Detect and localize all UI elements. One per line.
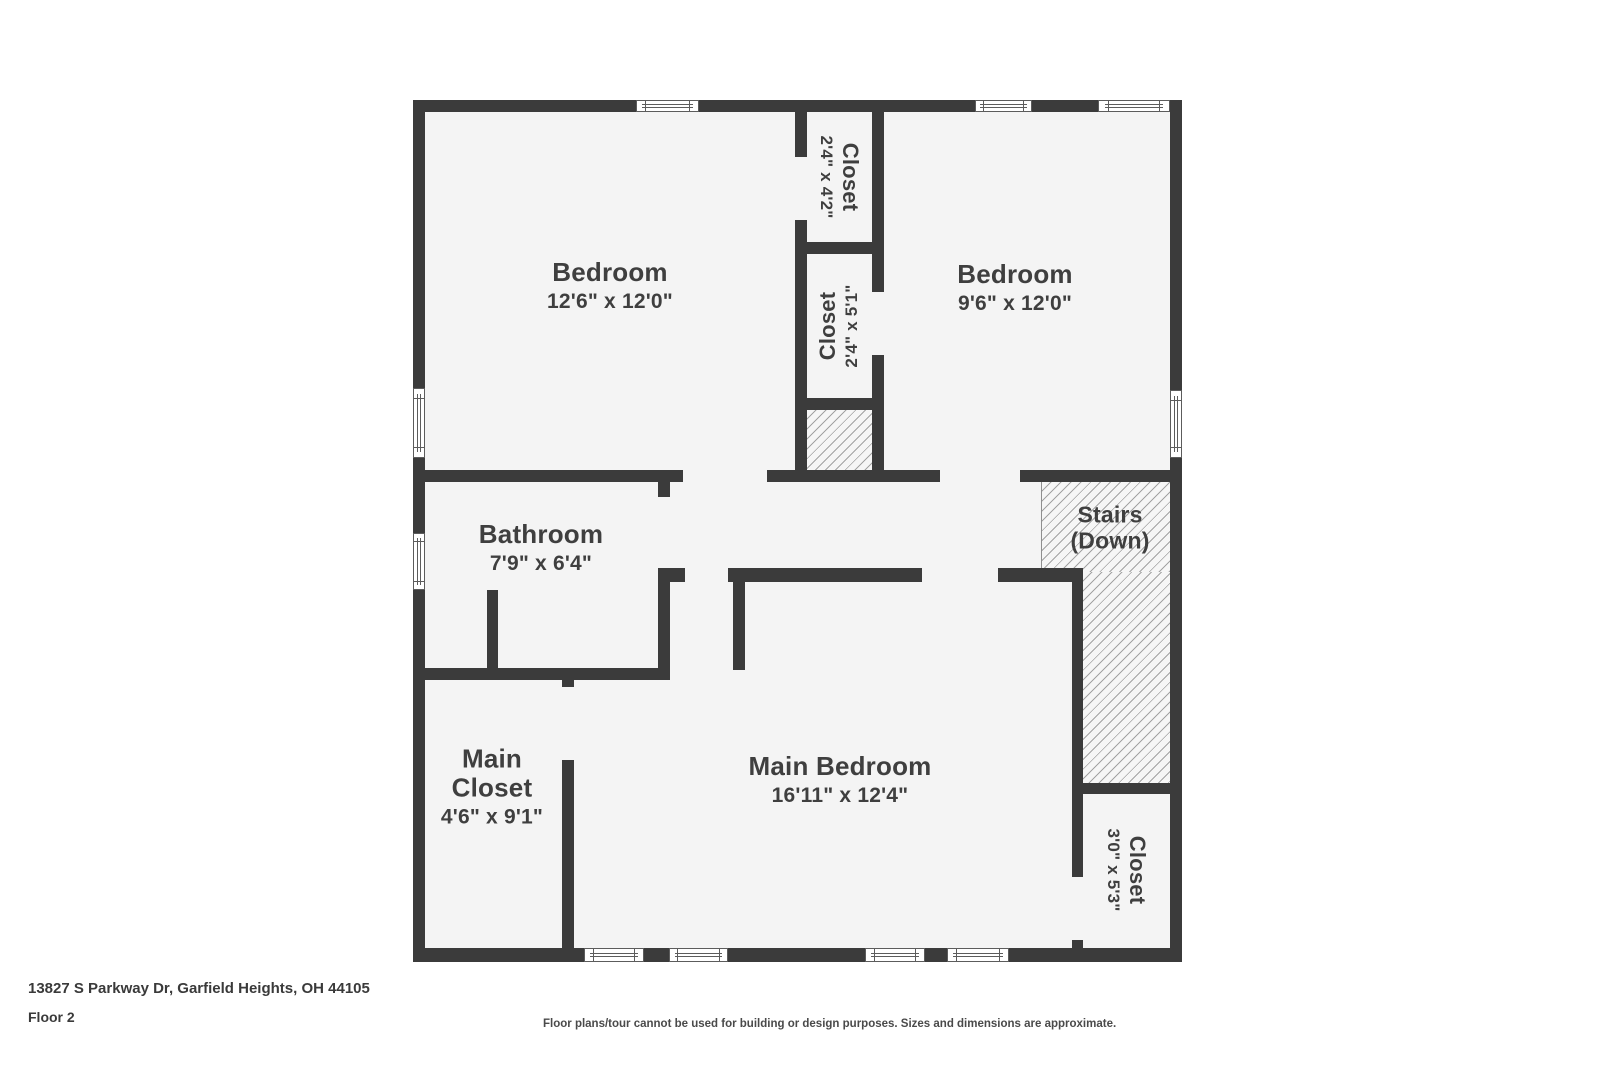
wall-segment — [658, 568, 685, 582]
wall-segment — [728, 568, 922, 582]
wall-exterior-right — [1170, 100, 1182, 962]
floor-label: Floor 2 — [28, 1009, 75, 1025]
room-dims: 12'6" x 12'0" — [547, 290, 673, 314]
stairs-direction: (Down) — [1070, 528, 1149, 554]
window-symbol — [413, 533, 425, 590]
wall-segment — [767, 470, 940, 482]
room-name: Bedroom — [547, 258, 673, 287]
wall-segment — [658, 568, 670, 680]
room-dims: 16'11" x 12'4" — [749, 784, 932, 808]
disclaimer-text: Floor plans/tour cannot be used for buil… — [543, 1018, 1116, 1030]
window-symbol — [1098, 100, 1170, 112]
room-dims: 7'9" x 6'4" — [479, 552, 603, 576]
wall-segment — [487, 590, 498, 668]
wall-segment — [1072, 582, 1083, 877]
window-symbol — [865, 948, 925, 962]
closet-bottom-right-label: Closet 3'0" x 5'3" — [1103, 828, 1149, 911]
main-bedroom-label: Main Bedroom 16'11" x 12'4" — [749, 752, 932, 808]
room-name: Closet — [816, 284, 841, 367]
wall-exterior-bottom — [413, 948, 1182, 962]
closet-mid-label: Closet 2'4" x 5'1" — [816, 284, 862, 367]
wall-segment — [795, 112, 807, 157]
bedroom-1-label: Bedroom 12'6" x 12'0" — [547, 258, 673, 314]
main-closet-label: Main Closet 4'6" x 9'1" — [429, 744, 555, 829]
window-symbol — [975, 100, 1032, 112]
room-name: Main Bedroom — [749, 752, 932, 781]
room-name: Bedroom — [957, 260, 1073, 289]
wall-segment — [872, 355, 884, 470]
window-symbol — [413, 388, 425, 458]
window-symbol — [584, 948, 644, 962]
room-dims: 2'4" x 5'1" — [842, 284, 862, 367]
wall-exterior-top — [413, 100, 1182, 112]
landing-hatch — [807, 410, 872, 470]
wall-segment — [1072, 940, 1083, 948]
wall-segment — [1020, 470, 1182, 482]
wall-segment — [562, 678, 574, 687]
wall-segment — [795, 220, 807, 470]
stairs-label: Stairs (Down) — [1070, 502, 1149, 554]
room-name: Main Closet — [429, 744, 555, 802]
wall-exterior-left — [413, 100, 425, 962]
wall-segment — [413, 668, 663, 680]
room-dims: 9'6" x 12'0" — [957, 292, 1073, 316]
room-name: Closet — [837, 135, 862, 218]
wall-segment — [1072, 783, 1182, 794]
window-symbol — [636, 100, 699, 112]
wall-segment — [413, 470, 683, 482]
wall-segment — [733, 582, 745, 670]
stairs-hatch-lower — [1083, 572, 1170, 783]
wall-segment — [795, 398, 884, 410]
stairs-name: Stairs — [1070, 502, 1149, 528]
room-dims: 3'0" x 5'3" — [1103, 828, 1123, 911]
window-symbol — [1170, 390, 1182, 458]
wall-segment — [872, 112, 884, 292]
wall-segment — [998, 568, 1083, 582]
room-dims: 2'4" x 4'2" — [816, 135, 836, 218]
bathroom-label: Bathroom 7'9" x 6'4" — [479, 520, 603, 576]
bedroom-2-label: Bedroom 9'6" x 12'0" — [957, 260, 1073, 316]
room-dims: 4'6" x 9'1" — [429, 806, 555, 830]
property-address: 13827 S Parkway Dr, Garfield Heights, OH… — [28, 980, 370, 997]
floorplan-page: Bedroom 12'6" x 12'0" Bedroom 9'6" x 12'… — [0, 0, 1600, 1067]
wall-segment — [795, 242, 884, 254]
room-name: Closet — [1124, 828, 1149, 911]
window-symbol — [947, 948, 1009, 962]
wall-segment — [658, 470, 670, 497]
closet-top-label: Closet 2'4" x 4'2" — [816, 135, 862, 218]
window-symbol — [669, 948, 728, 962]
wall-segment — [562, 760, 574, 948]
room-name: Bathroom — [479, 520, 603, 549]
